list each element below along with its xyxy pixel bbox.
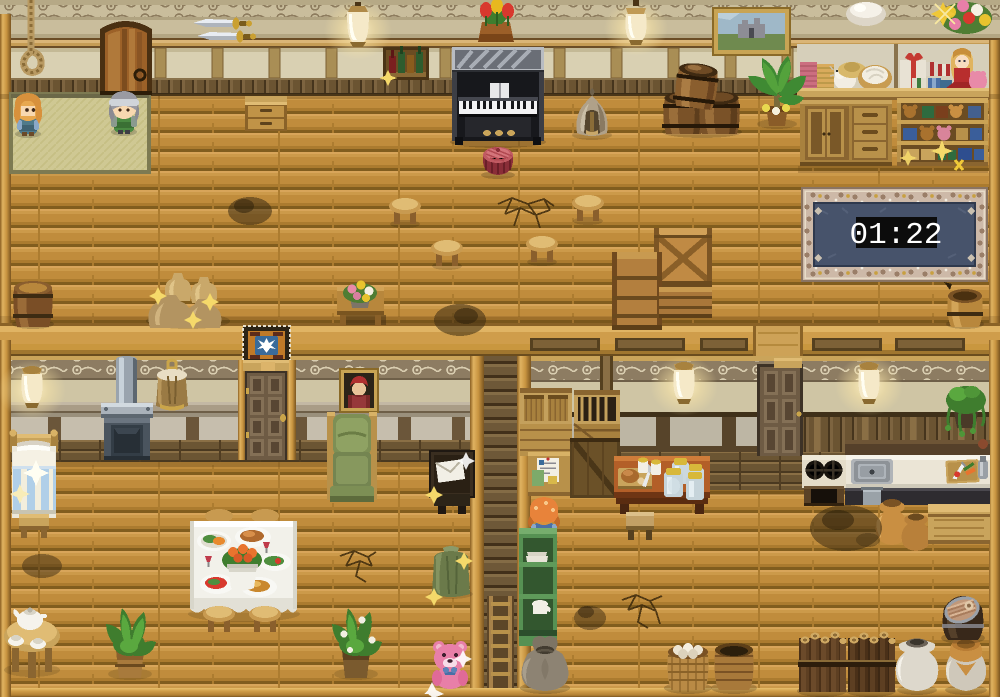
svg-text:01:22: 01:22: [849, 218, 942, 253]
